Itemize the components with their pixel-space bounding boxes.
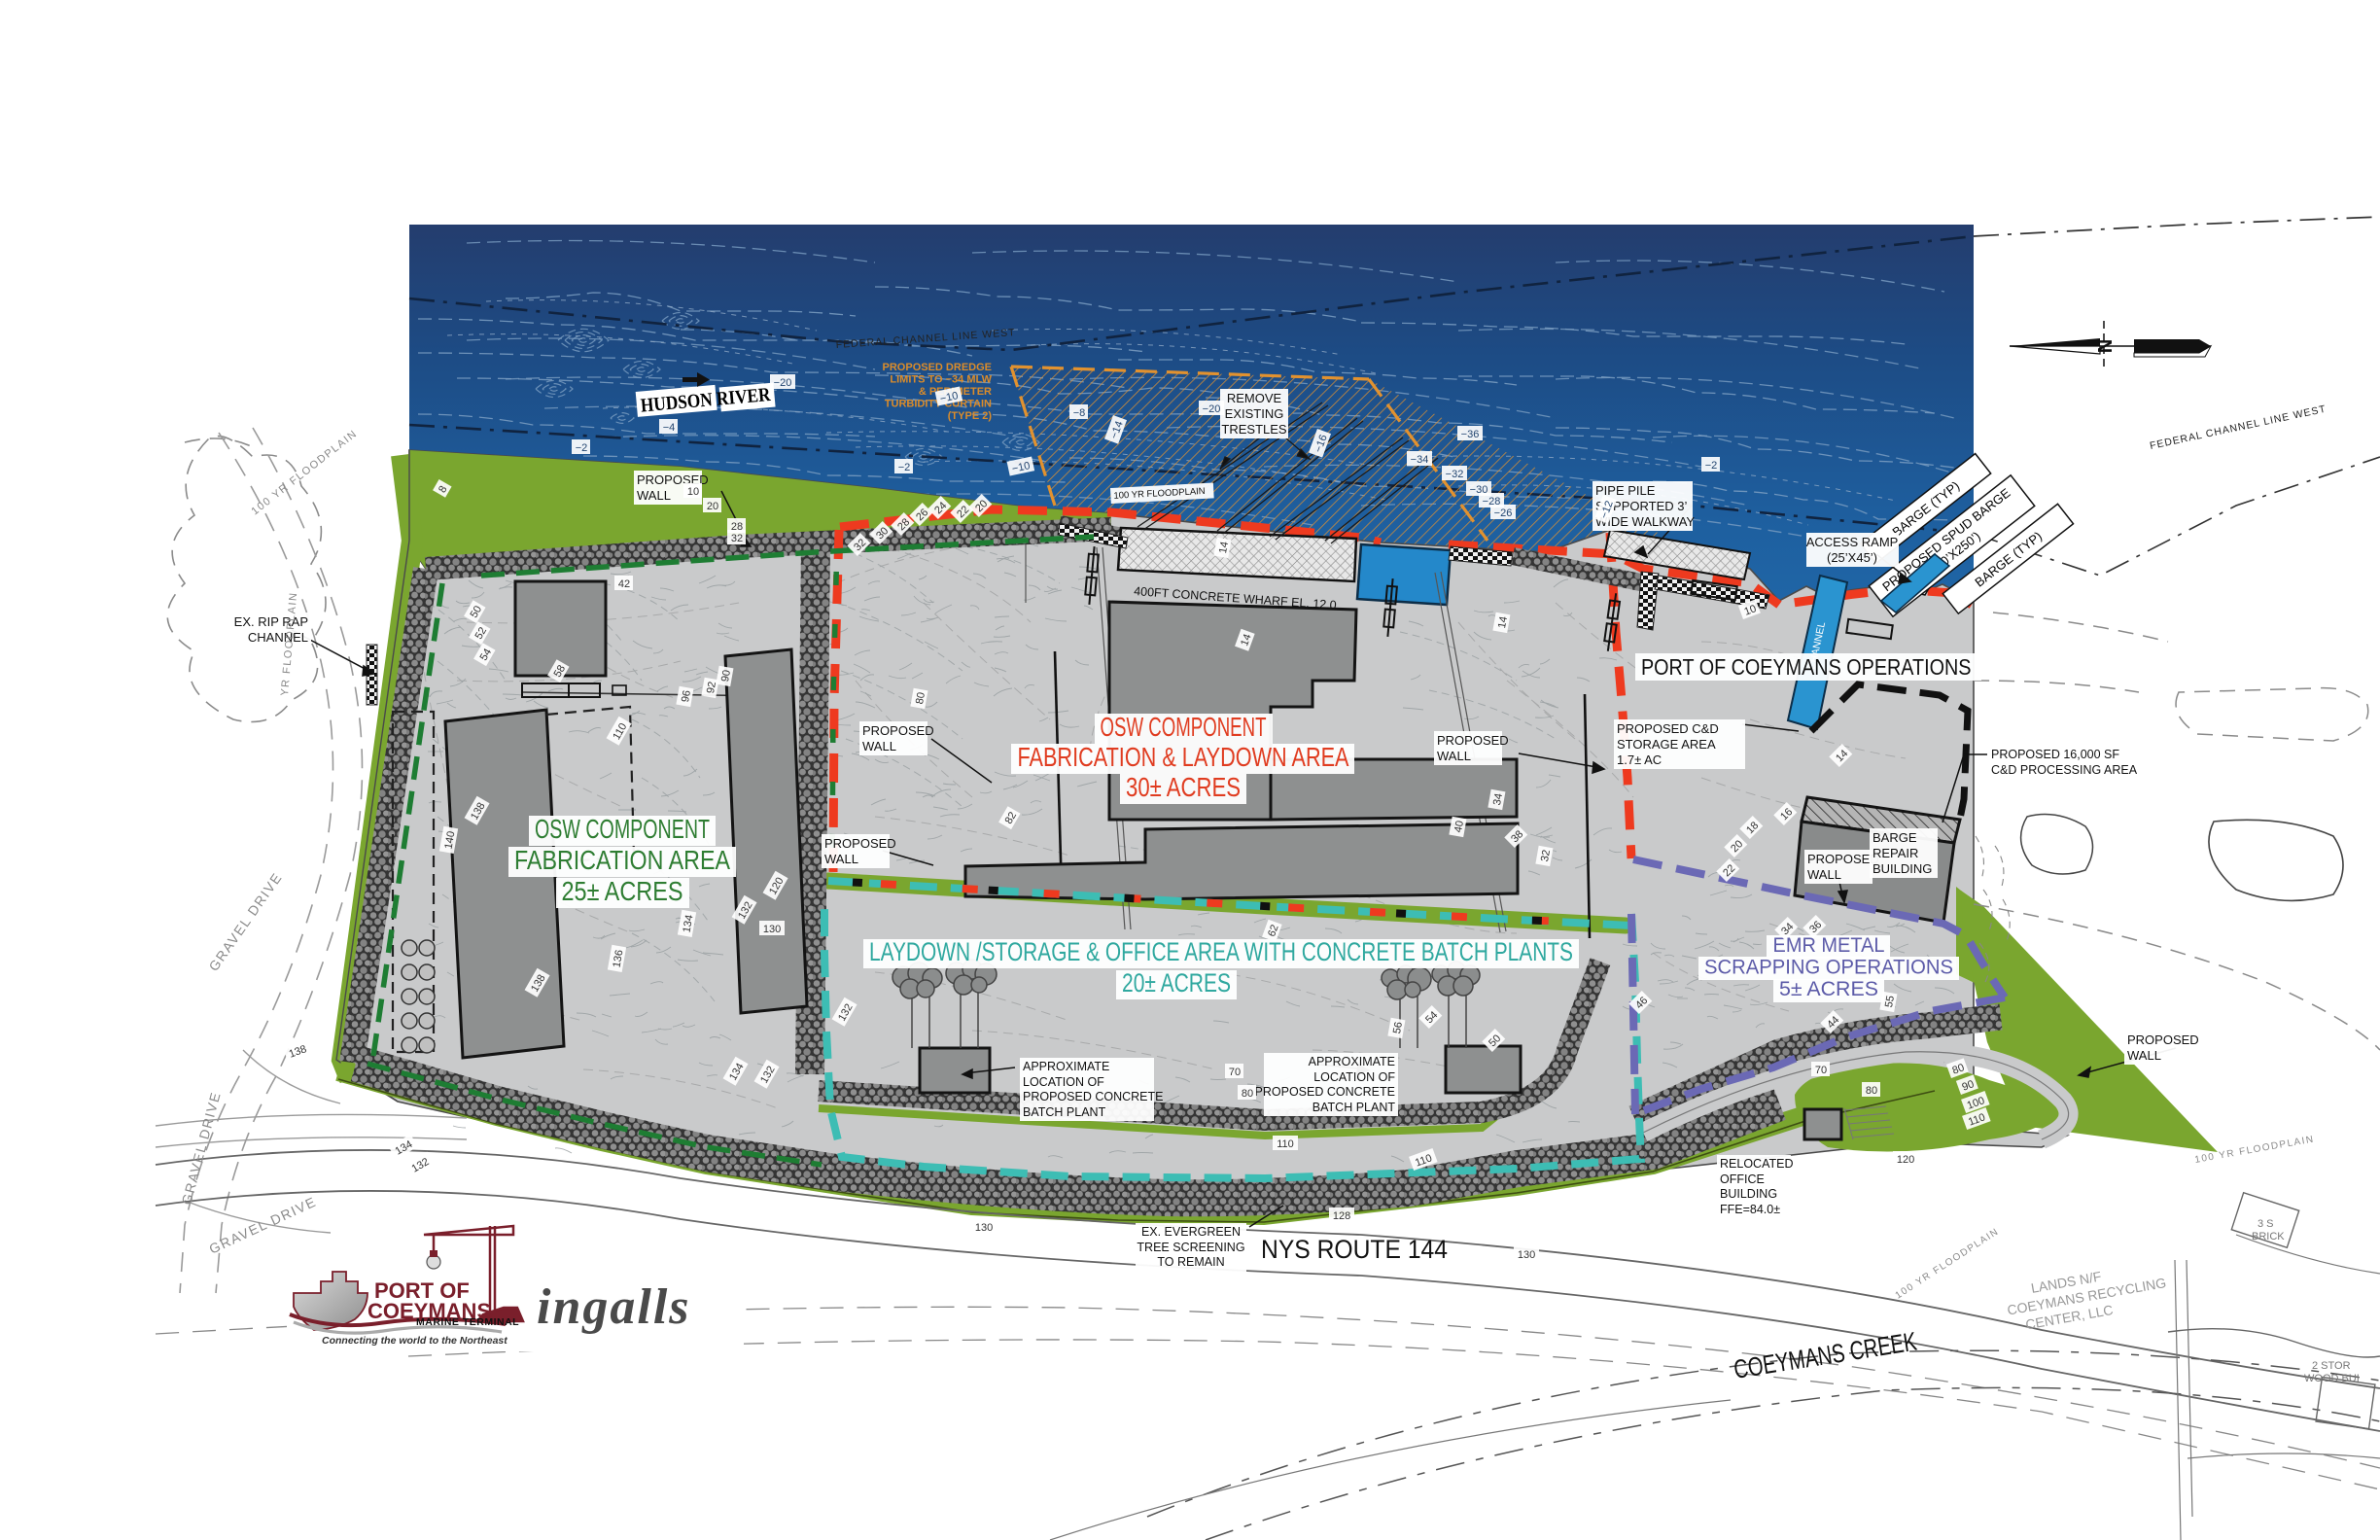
svg-text:110: 110 bbox=[1277, 1138, 1294, 1150]
svg-text:70: 70 bbox=[1229, 1067, 1241, 1078]
svg-text:PROPOSED: PROPOSED bbox=[2127, 1032, 2199, 1047]
svg-text:LOCATION OF: LOCATION OF bbox=[1023, 1075, 1104, 1089]
svg-text:(25’X45’): (25’X45’) bbox=[1827, 550, 1877, 565]
svg-text:OFFICE: OFFICE bbox=[1720, 1172, 1765, 1186]
svg-text:70: 70 bbox=[1815, 1065, 1827, 1076]
svg-text:FABRICATION AREA: FABRICATION AREA bbox=[514, 845, 730, 875]
svg-text:OSW COMPONENT: OSW COMPONENT bbox=[1101, 712, 1267, 742]
svg-text:BUILDING: BUILDING bbox=[1720, 1187, 1777, 1201]
svg-text:WALL: WALL bbox=[1807, 867, 1841, 882]
svg-text:PORT OF COEYMANS OPERATIONS: PORT OF COEYMANS OPERATIONS bbox=[1641, 655, 1971, 681]
svg-text:92: 92 bbox=[705, 681, 718, 694]
svg-text:120: 120 bbox=[1897, 1154, 1914, 1166]
svg-text:130: 130 bbox=[975, 1222, 993, 1234]
svg-text:−2: −2 bbox=[898, 462, 911, 473]
svg-text:90: 90 bbox=[719, 669, 733, 682]
svg-text:BUILDING: BUILDING bbox=[1872, 861, 1932, 876]
svg-text:−20: −20 bbox=[1203, 403, 1221, 415]
svg-text:1.7± AC: 1.7± AC bbox=[1617, 752, 1662, 767]
svg-text:34: 34 bbox=[1491, 792, 1505, 806]
svg-text:128: 128 bbox=[1333, 1210, 1350, 1222]
svg-text:WALL: WALL bbox=[1437, 749, 1471, 763]
svg-text:BARGE: BARGE bbox=[1872, 830, 1917, 845]
svg-text:APPROXIMATE: APPROXIMATE bbox=[1023, 1060, 1109, 1073]
svg-text:−34: −34 bbox=[1411, 454, 1429, 466]
svg-text:(TYPE 2): (TYPE 2) bbox=[948, 410, 993, 422]
svg-text:−8: −8 bbox=[1073, 407, 1086, 419]
svg-text:RELOCATED: RELOCATED bbox=[1720, 1157, 1793, 1171]
svg-text:−20: −20 bbox=[774, 377, 792, 389]
svg-text:OSW COMPONENT: OSW COMPONENT bbox=[535, 814, 710, 844]
svg-text:APPROXIMATE: APPROXIMATE bbox=[1309, 1055, 1395, 1068]
svg-text:10: 10 bbox=[687, 486, 699, 498]
svg-text:CHANNEL: CHANNEL bbox=[248, 630, 308, 645]
svg-text:80: 80 bbox=[1866, 1085, 1877, 1097]
svg-text:TREE SCREENING: TREE SCREENING bbox=[1137, 1241, 1244, 1254]
svg-text:30± ACRES: 30± ACRES bbox=[1126, 772, 1241, 802]
svg-text:5± ACRES: 5± ACRES bbox=[1779, 978, 1878, 1000]
svg-text:N: N bbox=[2093, 339, 2115, 353]
svg-text:PROPOSED: PROPOSED bbox=[1437, 733, 1509, 748]
svg-text:TRESTLES: TRESTLES bbox=[1221, 422, 1287, 437]
svg-text:80: 80 bbox=[1242, 1088, 1253, 1100]
svg-text:−2: −2 bbox=[576, 442, 588, 454]
svg-text:REMOVE: REMOVE bbox=[1227, 391, 1282, 405]
svg-text:PROPOSED C&D: PROPOSED C&D bbox=[1617, 721, 1719, 736]
svg-text:MARINE TERMINAL: MARINE TERMINAL bbox=[416, 1316, 519, 1328]
svg-text:32: 32 bbox=[1539, 849, 1553, 862]
svg-text:130: 130 bbox=[1518, 1249, 1535, 1261]
svg-text:SCRAPPING OPERATIONS: SCRAPPING OPERATIONS bbox=[1704, 957, 1953, 979]
svg-text:130: 130 bbox=[763, 924, 781, 935]
svg-text:REPAIR: REPAIR bbox=[1872, 846, 1918, 860]
svg-text:STORAGE AREA: STORAGE AREA bbox=[1617, 737, 1716, 752]
svg-text:−4: −4 bbox=[663, 422, 676, 434]
svg-text:40: 40 bbox=[1452, 820, 1466, 833]
svg-text:EXISTING: EXISTING bbox=[1225, 406, 1284, 421]
svg-text:20± ACRES: 20± ACRES bbox=[1122, 968, 1231, 997]
svg-text:BATCH PLANT: BATCH PLANT bbox=[1312, 1101, 1396, 1114]
svg-text:WALL: WALL bbox=[2127, 1048, 2161, 1063]
svg-text:−36: −36 bbox=[1461, 429, 1480, 440]
svg-text:C&D PROCESSING AREA: C&D PROCESSING AREA bbox=[1991, 763, 2138, 777]
svg-text:20: 20 bbox=[707, 501, 718, 512]
svg-text:PROPOSED CONCRETE: PROPOSED CONCRETE bbox=[1255, 1085, 1395, 1099]
svg-text:−2: −2 bbox=[1705, 460, 1718, 472]
svg-text:WALL: WALL bbox=[824, 852, 858, 866]
svg-text:NYS ROUTE 144: NYS ROUTE 144 bbox=[1261, 1235, 1448, 1264]
svg-text:PROPOSED: PROPOSED bbox=[824, 836, 896, 851]
svg-text:Connecting the world to the No: Connecting the world to the Northeast bbox=[322, 1335, 507, 1347]
svg-text:ACCESS RAMP: ACCESS RAMP bbox=[1806, 535, 1899, 549]
svg-text:PROPOSED CONCRETE: PROPOSED CONCRETE bbox=[1023, 1090, 1163, 1103]
svg-text:−32: −32 bbox=[1446, 469, 1464, 480]
svg-text:WOOD BUI: WOOD BUI bbox=[2304, 1373, 2360, 1384]
svg-text:TO REMAIN: TO REMAIN bbox=[1157, 1255, 1224, 1269]
svg-text:LOCATION OF: LOCATION OF bbox=[1313, 1070, 1395, 1084]
svg-text:2 STOR: 2 STOR bbox=[2312, 1360, 2351, 1372]
svg-text:96: 96 bbox=[680, 689, 693, 703]
svg-text:3 S: 3 S bbox=[2257, 1218, 2274, 1230]
svg-text:LIMITS TO −34 MLW: LIMITS TO −34 MLW bbox=[890, 374, 992, 386]
svg-text:EMR METAL: EMR METAL bbox=[1773, 934, 1885, 957]
svg-text:PROPOSED: PROPOSED bbox=[1807, 852, 1879, 866]
svg-text:PROPOSED: PROPOSED bbox=[862, 723, 934, 738]
svg-text:WALL: WALL bbox=[637, 488, 671, 503]
svg-text:42: 42 bbox=[618, 578, 630, 590]
svg-text:32: 32 bbox=[731, 533, 743, 544]
svg-text:PROPOSED 16,000 SF: PROPOSED 16,000 SF bbox=[1991, 748, 2119, 761]
svg-text:WALL: WALL bbox=[862, 739, 896, 753]
svg-text:LAYDOWN /STORAGE & OFFICE ARE: LAYDOWN /STORAGE & OFFICE AREA WITH CONC… bbox=[869, 937, 1573, 966]
svg-text:14: 14 bbox=[1217, 541, 1231, 554]
svg-text:BATCH PLANT: BATCH PLANT bbox=[1023, 1105, 1106, 1119]
svg-text:FABRICATION & LAYDOWN AREA: FABRICATION & LAYDOWN AREA bbox=[1018, 742, 1349, 772]
svg-text:56: 56 bbox=[1391, 1021, 1405, 1034]
svg-text:80: 80 bbox=[914, 691, 927, 705]
svg-text:55: 55 bbox=[1883, 995, 1897, 1008]
svg-text:EX. EVERGREEN: EX. EVERGREEN bbox=[1141, 1225, 1241, 1239]
svg-text:ingalls: ingalls bbox=[537, 1279, 691, 1335]
svg-text:BRICK: BRICK bbox=[2252, 1231, 2285, 1242]
svg-text:PROPOSED DREDGE: PROPOSED DREDGE bbox=[883, 362, 992, 373]
svg-text:25± ACRES: 25± ACRES bbox=[562, 876, 683, 906]
svg-text:−26: −26 bbox=[1494, 507, 1513, 519]
svg-text:FFE=84.0±: FFE=84.0± bbox=[1720, 1203, 1780, 1216]
svg-text:14: 14 bbox=[1496, 615, 1510, 629]
